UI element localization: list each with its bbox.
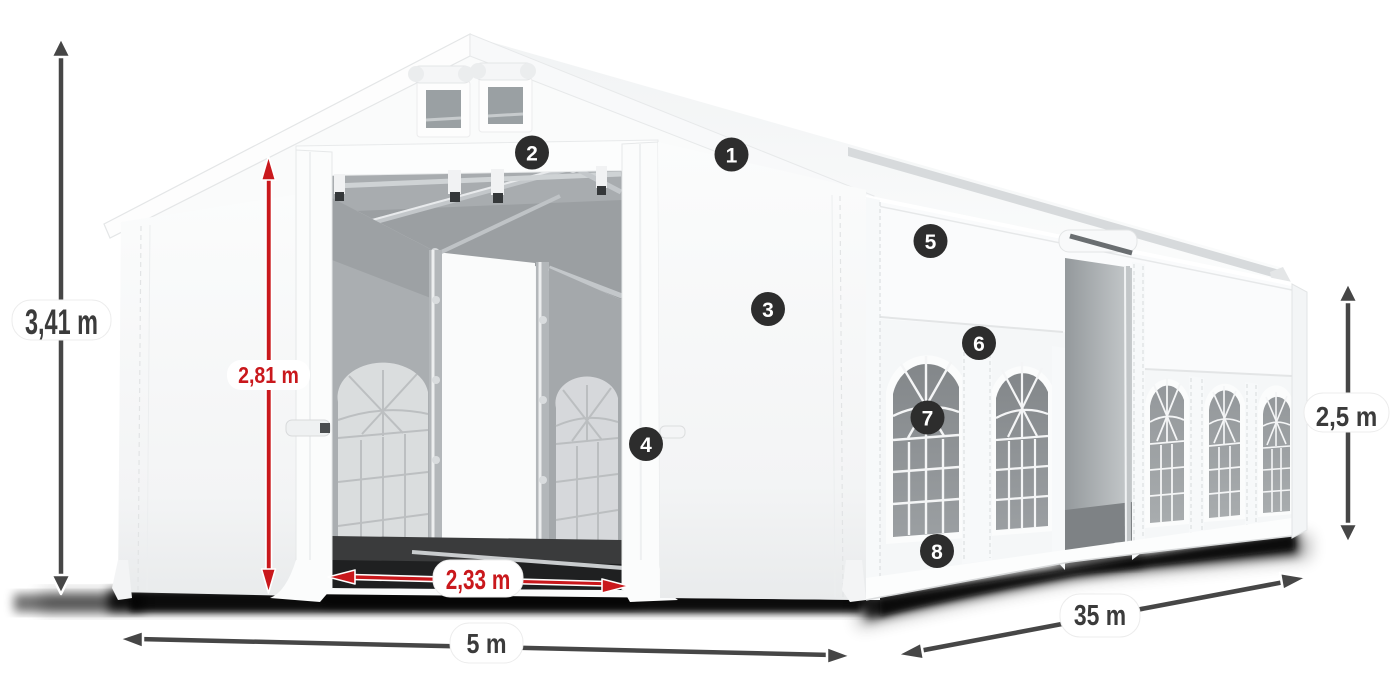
- svg-text:4: 4: [640, 434, 652, 457]
- svg-text:6: 6: [973, 333, 985, 356]
- svg-text:7: 7: [922, 408, 934, 431]
- svg-text:5: 5: [925, 231, 937, 254]
- svg-text:2,33 m: 2,33 m: [446, 565, 510, 596]
- svg-text:2: 2: [526, 143, 538, 166]
- svg-text:8: 8: [931, 541, 943, 564]
- svg-text:35 m: 35 m: [1074, 598, 1126, 631]
- svg-text:2,81 m: 2,81 m: [238, 363, 299, 389]
- svg-text:3,41 m: 3,41 m: [25, 303, 98, 342]
- svg-text:2,5 m: 2,5 m: [1316, 400, 1378, 432]
- svg-text:5 m: 5 m: [466, 629, 506, 659]
- svg-text:1: 1: [726, 145, 738, 168]
- svg-text:3: 3: [762, 299, 774, 322]
